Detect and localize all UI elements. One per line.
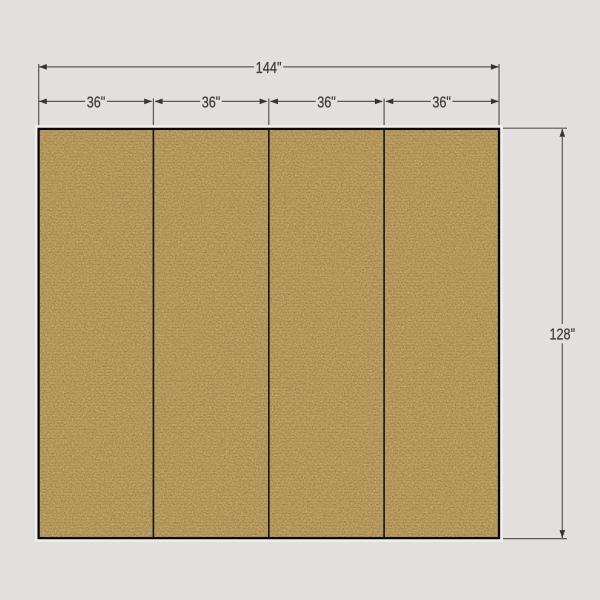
svg-text:36": 36" bbox=[432, 95, 451, 112]
svg-text:36": 36" bbox=[317, 95, 336, 112]
svg-text:128": 128" bbox=[550, 327, 576, 344]
svg-text:144": 144" bbox=[256, 60, 282, 77]
svg-text:36": 36" bbox=[87, 95, 106, 112]
svg-text:36": 36" bbox=[202, 95, 221, 112]
